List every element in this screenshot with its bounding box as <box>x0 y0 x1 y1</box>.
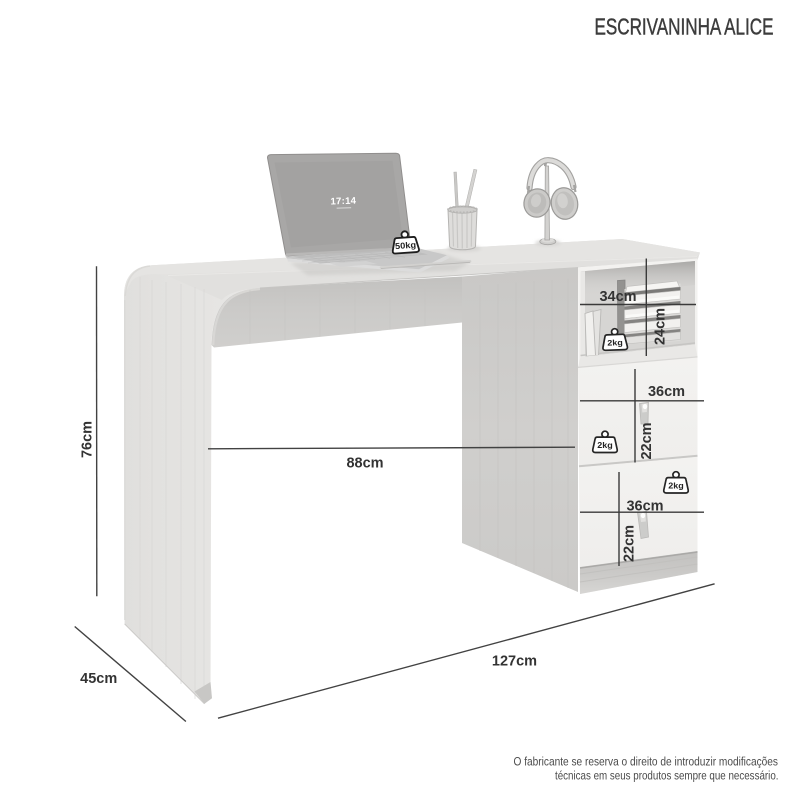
svg-text:2kg: 2kg <box>607 338 623 348</box>
svg-text:22cm: 22cm <box>639 422 655 459</box>
svg-text:36cm: 36cm <box>626 499 663 515</box>
svg-text:O fabricante se reserva o dire: O fabricante se reserva o direito de int… <box>514 755 779 769</box>
svg-text:técnicas em seus produtos semp: técnicas em seus produtos sempre que nec… <box>555 769 779 783</box>
svg-text:2kg: 2kg <box>597 441 613 450</box>
svg-text:2kg: 2kg <box>668 481 684 490</box>
svg-text:88cm: 88cm <box>346 456 383 472</box>
svg-text:127cm: 127cm <box>492 654 537 670</box>
svg-text:17:14: 17:14 <box>330 196 357 208</box>
svg-text:76cm: 76cm <box>80 421 96 458</box>
svg-text:22cm: 22cm <box>622 525 638 562</box>
svg-text:34cm: 34cm <box>599 289 636 305</box>
svg-text:ESCRIVANINHA ALICE: ESCRIVANINHA ALICE <box>595 14 774 40</box>
svg-text:45cm: 45cm <box>80 671 117 687</box>
svg-text:24cm: 24cm <box>653 308 669 345</box>
svg-text:36cm: 36cm <box>648 384 685 400</box>
svg-text:50kg: 50kg <box>395 240 417 251</box>
